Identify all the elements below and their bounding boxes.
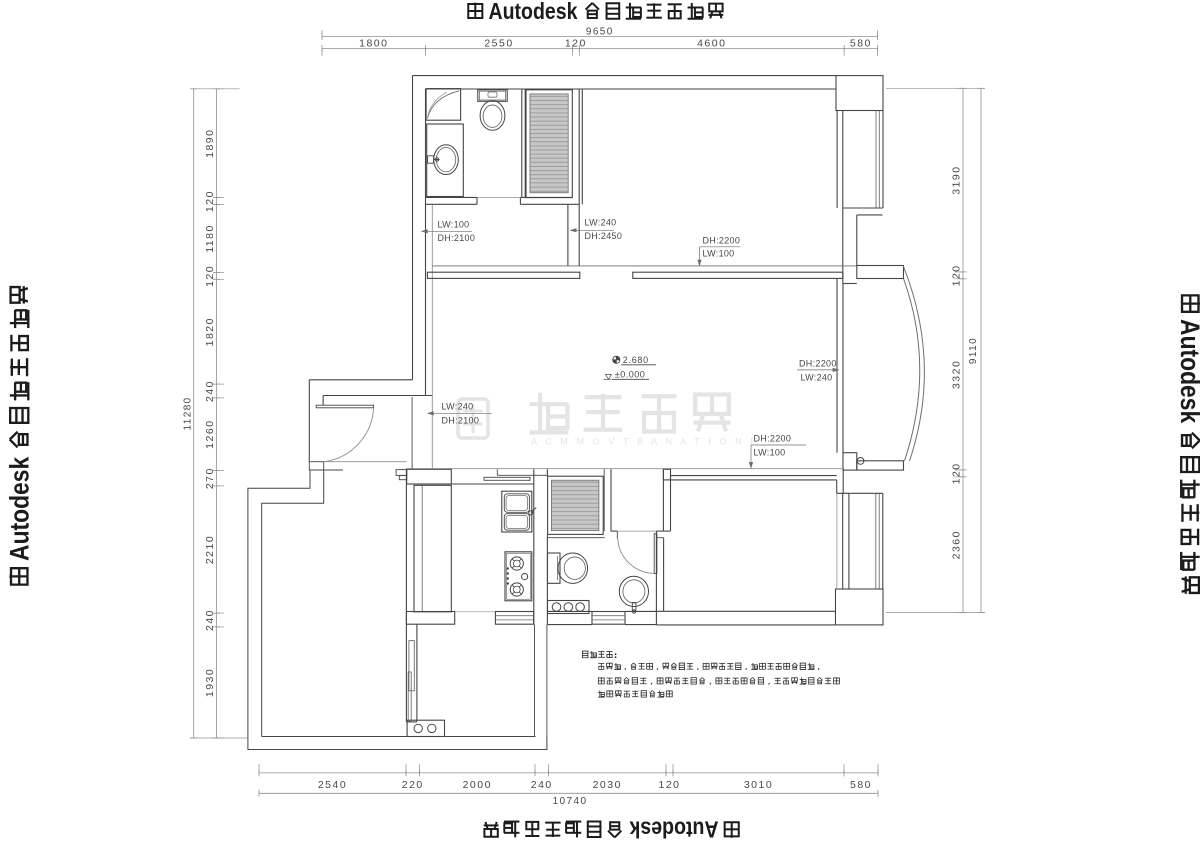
- svg-text:9110: 9110: [968, 337, 979, 364]
- svg-text:1930: 1930: [204, 668, 216, 697]
- svg-text:3320: 3320: [950, 360, 962, 389]
- svg-text:2000: 2000: [463, 779, 492, 791]
- svg-text:DH:2100: DH:2100: [438, 233, 476, 243]
- svg-text:2030: 2030: [593, 779, 622, 791]
- svg-text:±0.000: ±0.000: [615, 369, 645, 379]
- svg-text:120: 120: [950, 264, 962, 286]
- svg-text:DH:2200: DH:2200: [703, 236, 741, 246]
- svg-text:270: 270: [204, 467, 216, 489]
- svg-text:1260: 1260: [204, 419, 216, 448]
- svg-text:Autodesk: Autodesk: [5, 457, 35, 561]
- svg-text:LW:100: LW:100: [703, 249, 735, 259]
- svg-text:LW:100: LW:100: [438, 220, 470, 230]
- svg-text:DH:2450: DH:2450: [585, 231, 623, 241]
- svg-text:580: 580: [850, 37, 872, 49]
- svg-text:120: 120: [565, 37, 587, 49]
- svg-text:120: 120: [204, 190, 216, 212]
- svg-text:10740: 10740: [553, 796, 588, 807]
- svg-text:120: 120: [204, 265, 216, 287]
- svg-text:3010: 3010: [744, 779, 773, 791]
- svg-text:DH:2200: DH:2200: [799, 359, 837, 369]
- svg-text:11280: 11280: [182, 396, 193, 430]
- svg-text:LW:100: LW:100: [754, 448, 786, 458]
- svg-text:LW:240: LW:240: [442, 402, 474, 412]
- svg-text:LW:240: LW:240: [585, 218, 617, 228]
- svg-text:LW:240: LW:240: [801, 373, 833, 383]
- svg-text:Autodesk: Autodesk: [1175, 319, 1200, 423]
- svg-text:1800: 1800: [359, 37, 388, 49]
- svg-text:2360: 2360: [950, 530, 962, 559]
- svg-text:4600: 4600: [697, 37, 726, 49]
- svg-text:Autodesk: Autodesk: [629, 816, 718, 842]
- svg-text:2550: 2550: [484, 37, 513, 49]
- svg-text:240: 240: [531, 779, 553, 791]
- svg-text:1890: 1890: [204, 129, 216, 158]
- svg-text:3190: 3190: [950, 165, 962, 194]
- svg-text:2540: 2540: [318, 779, 347, 791]
- svg-text:9650: 9650: [586, 26, 614, 37]
- svg-text:240: 240: [204, 380, 216, 402]
- svg-text:1820: 1820: [204, 317, 216, 346]
- svg-text:2.680: 2.680: [623, 355, 649, 365]
- svg-text:Autodesk: Autodesk: [489, 0, 578, 24]
- svg-text:DH:2200: DH:2200: [754, 434, 792, 444]
- svg-text:120: 120: [950, 462, 962, 484]
- svg-text:2210: 2210: [204, 535, 216, 564]
- svg-text:A C M M O V T B A N A T I O: A C M M O V T B A N A T I O N F: [531, 437, 759, 447]
- svg-text:1180: 1180: [204, 224, 216, 253]
- svg-text:120: 120: [658, 779, 680, 791]
- svg-text:220: 220: [402, 779, 424, 791]
- svg-text:580: 580: [850, 779, 872, 791]
- svg-text:DH:2100: DH:2100: [442, 416, 480, 426]
- svg-text:240: 240: [204, 609, 216, 631]
